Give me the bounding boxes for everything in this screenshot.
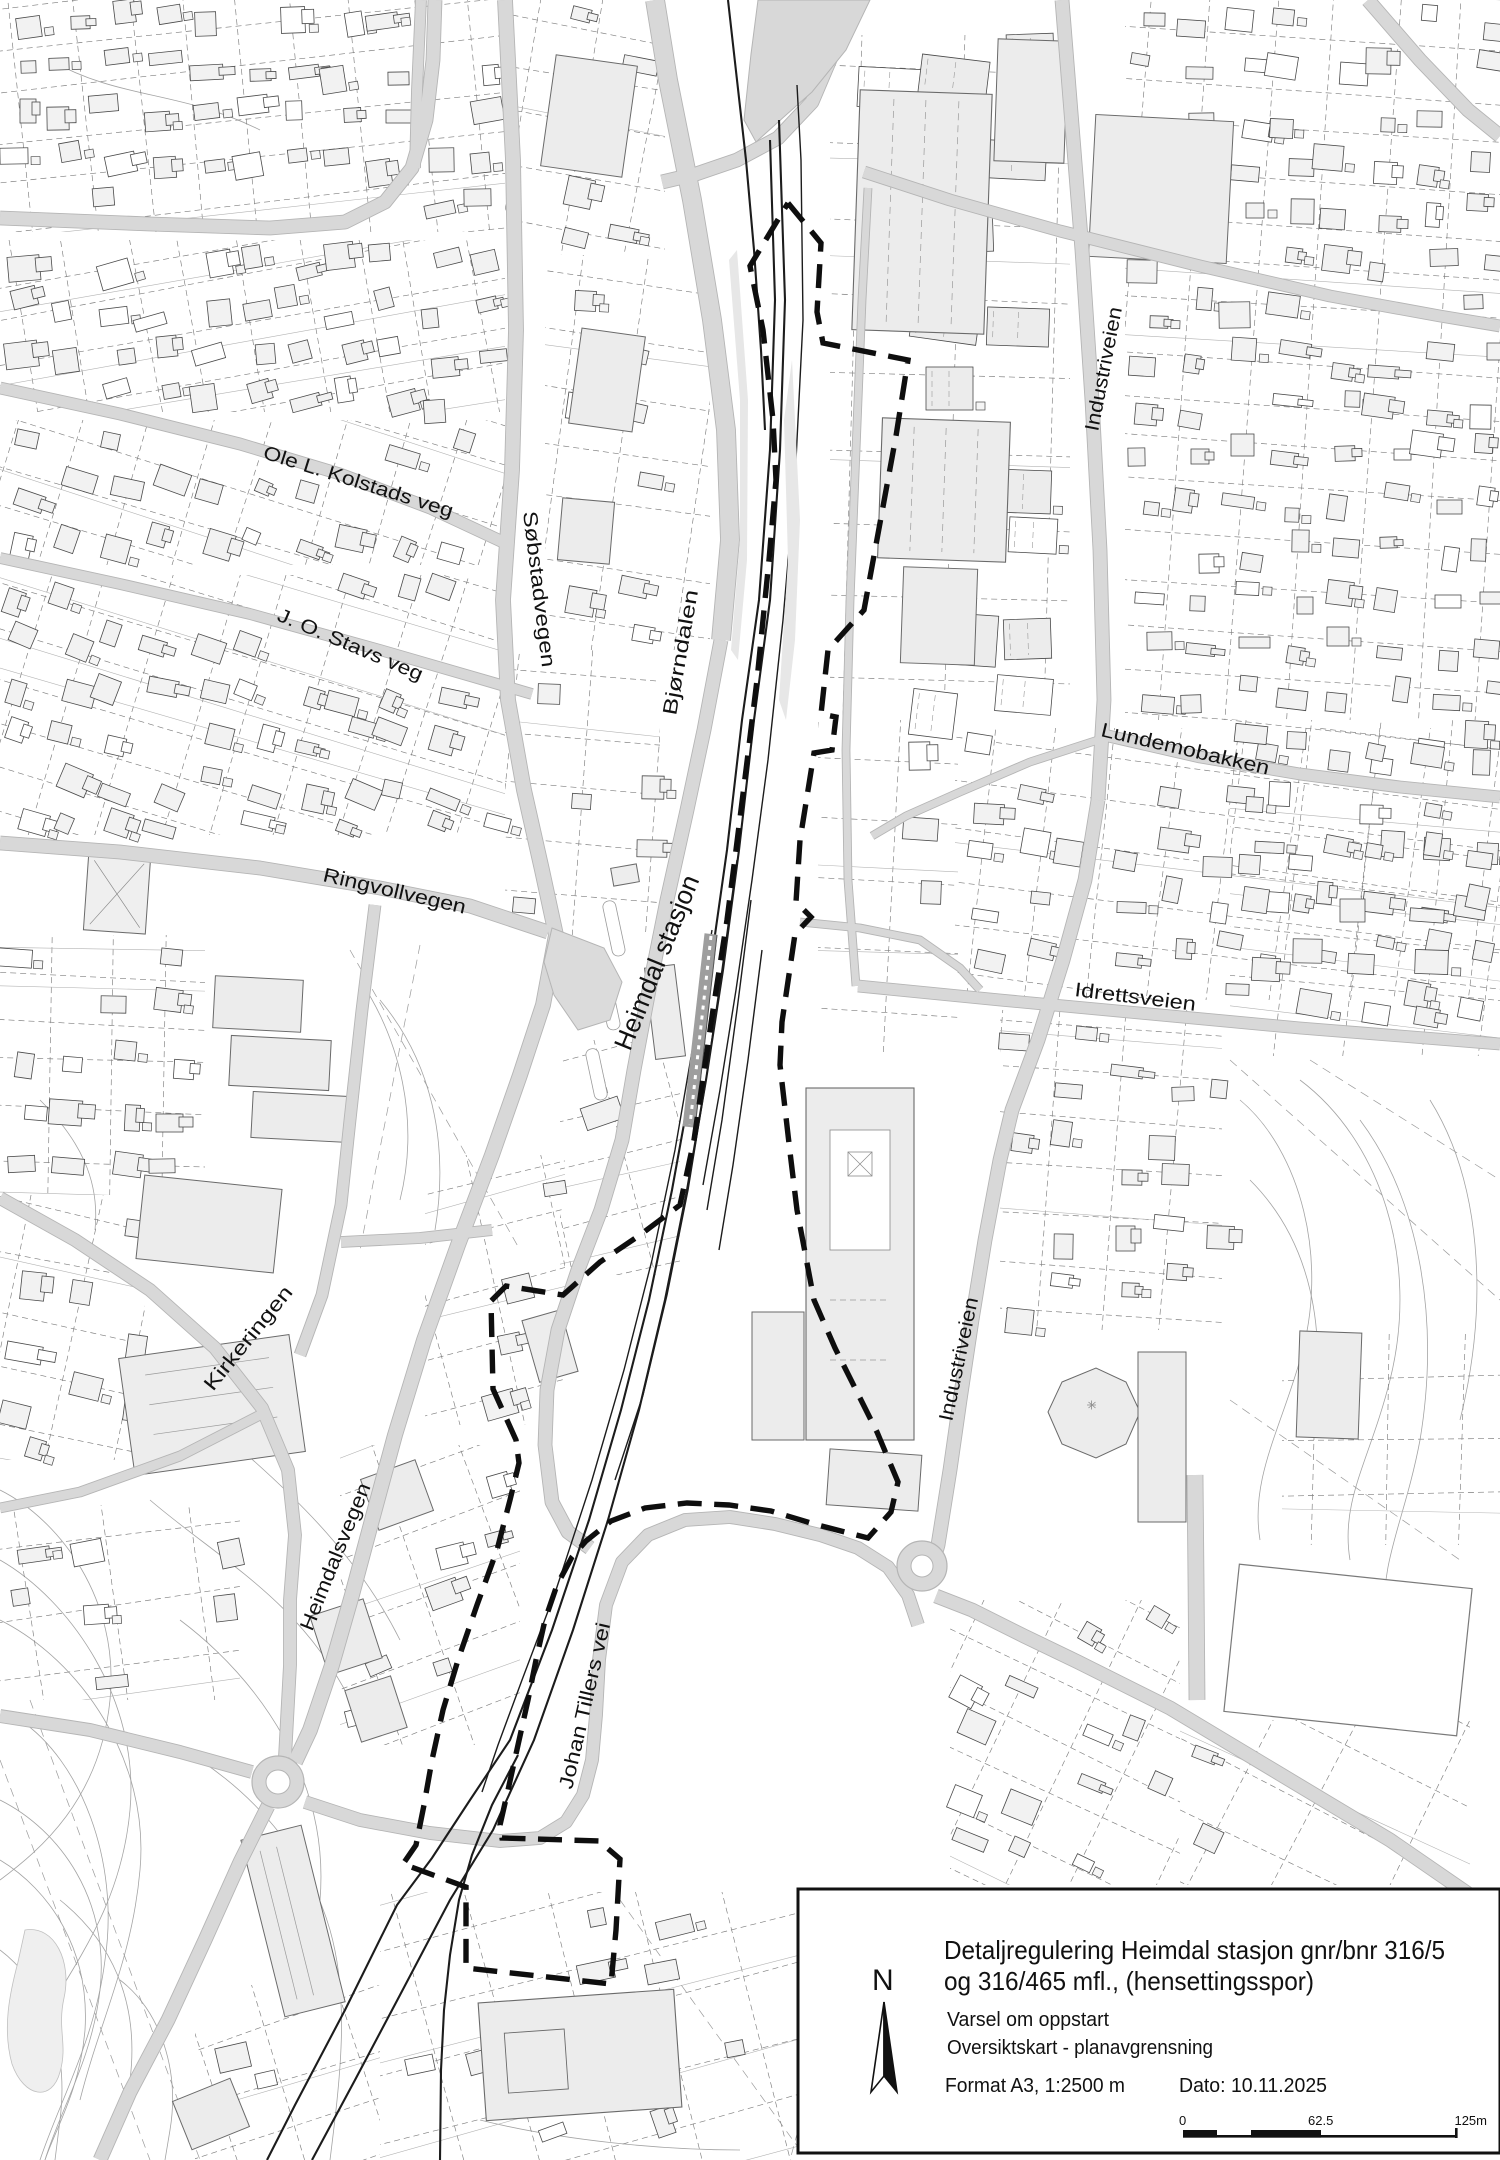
svg-text:Oversiktskart - planavgrensnin: Oversiktskart - planavgrensning [947, 2037, 1213, 2059]
svg-text:0: 0 [1179, 2113, 1186, 2128]
svg-text:125m: 125m [1454, 2113, 1487, 2128]
svg-text:Varsel om oppstart: Varsel om oppstart [947, 2009, 1109, 2031]
svg-text:N: N [872, 1964, 894, 1997]
svg-text:Format A3, 1:2500 m: Format A3, 1:2500 m [945, 2075, 1125, 2097]
svg-text:62.5: 62.5 [1308, 2113, 1333, 2128]
svg-text:Dato: 10.11.2025: Dato: 10.11.2025 [1179, 2075, 1327, 2097]
svg-text:og 316/465 mfl., (hensettingss: og 316/465 mfl., (hensettingsspor) [944, 1966, 1314, 1996]
svg-text:Detaljregulering Heimdal stasj: Detaljregulering Heimdal stasjon gnr/bnr… [944, 1935, 1445, 1965]
